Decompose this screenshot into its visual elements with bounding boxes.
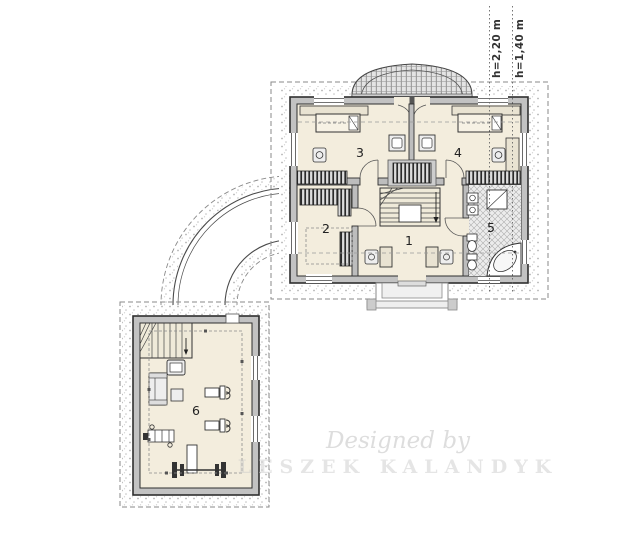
arched-balcony [352, 64, 472, 99]
main-building [271, 64, 548, 310]
height-label-220: h=2,20 m [491, 19, 503, 78]
window-room2-left [289, 222, 298, 254]
room2-wardrobe-right-lower [340, 232, 352, 266]
height-label-140: h=1,40 m [514, 19, 526, 78]
room3-chair [313, 148, 326, 162]
toilet [467, 234, 477, 252]
garage-wall-notch [226, 314, 239, 323]
room2-wardrobe-top [300, 189, 342, 205]
room3-bed [316, 114, 360, 132]
shower-cabinet [487, 190, 507, 209]
bidet [467, 254, 477, 270]
window-room4-right [520, 133, 529, 166]
floor-plan-drawing: h=2,20 m h=1,40 m 1 2 3 4 5 6 [0, 0, 638, 556]
window-top-right [478, 96, 508, 105]
room-label-4: 4 [454, 145, 462, 160]
room2-wardrobe-right-upper [338, 189, 351, 216]
staircase-main [380, 188, 440, 226]
room4-chair [492, 148, 505, 162]
wall-room2-lower [352, 226, 358, 276]
connector-stipple-outer [167, 182, 290, 305]
wall-center [409, 104, 414, 160]
sofa [149, 373, 167, 405]
stair-landing [399, 205, 421, 222]
room-label-2: 2 [322, 221, 330, 236]
room3-wardrobe [297, 171, 347, 184]
floor-plan-canvas: h=2,20 m h=1,40 m 1 2 3 4 5 6 Designed b… [0, 0, 638, 556]
window-room3-left [289, 133, 298, 166]
room-label-1: 1 [405, 233, 413, 248]
wall-room2-upper [352, 185, 358, 208]
chimney-block [388, 160, 436, 186]
window-top-left [314, 96, 344, 105]
room-label-5: 5 [487, 220, 495, 235]
staircase-garage [140, 323, 192, 358]
room4-bed [458, 114, 502, 132]
room4-wardrobe [466, 171, 520, 184]
room-label-6: 6 [192, 403, 200, 418]
room-label-3: 3 [356, 145, 364, 160]
side-table [171, 389, 183, 401]
window-bottom-room2 [306, 274, 332, 283]
